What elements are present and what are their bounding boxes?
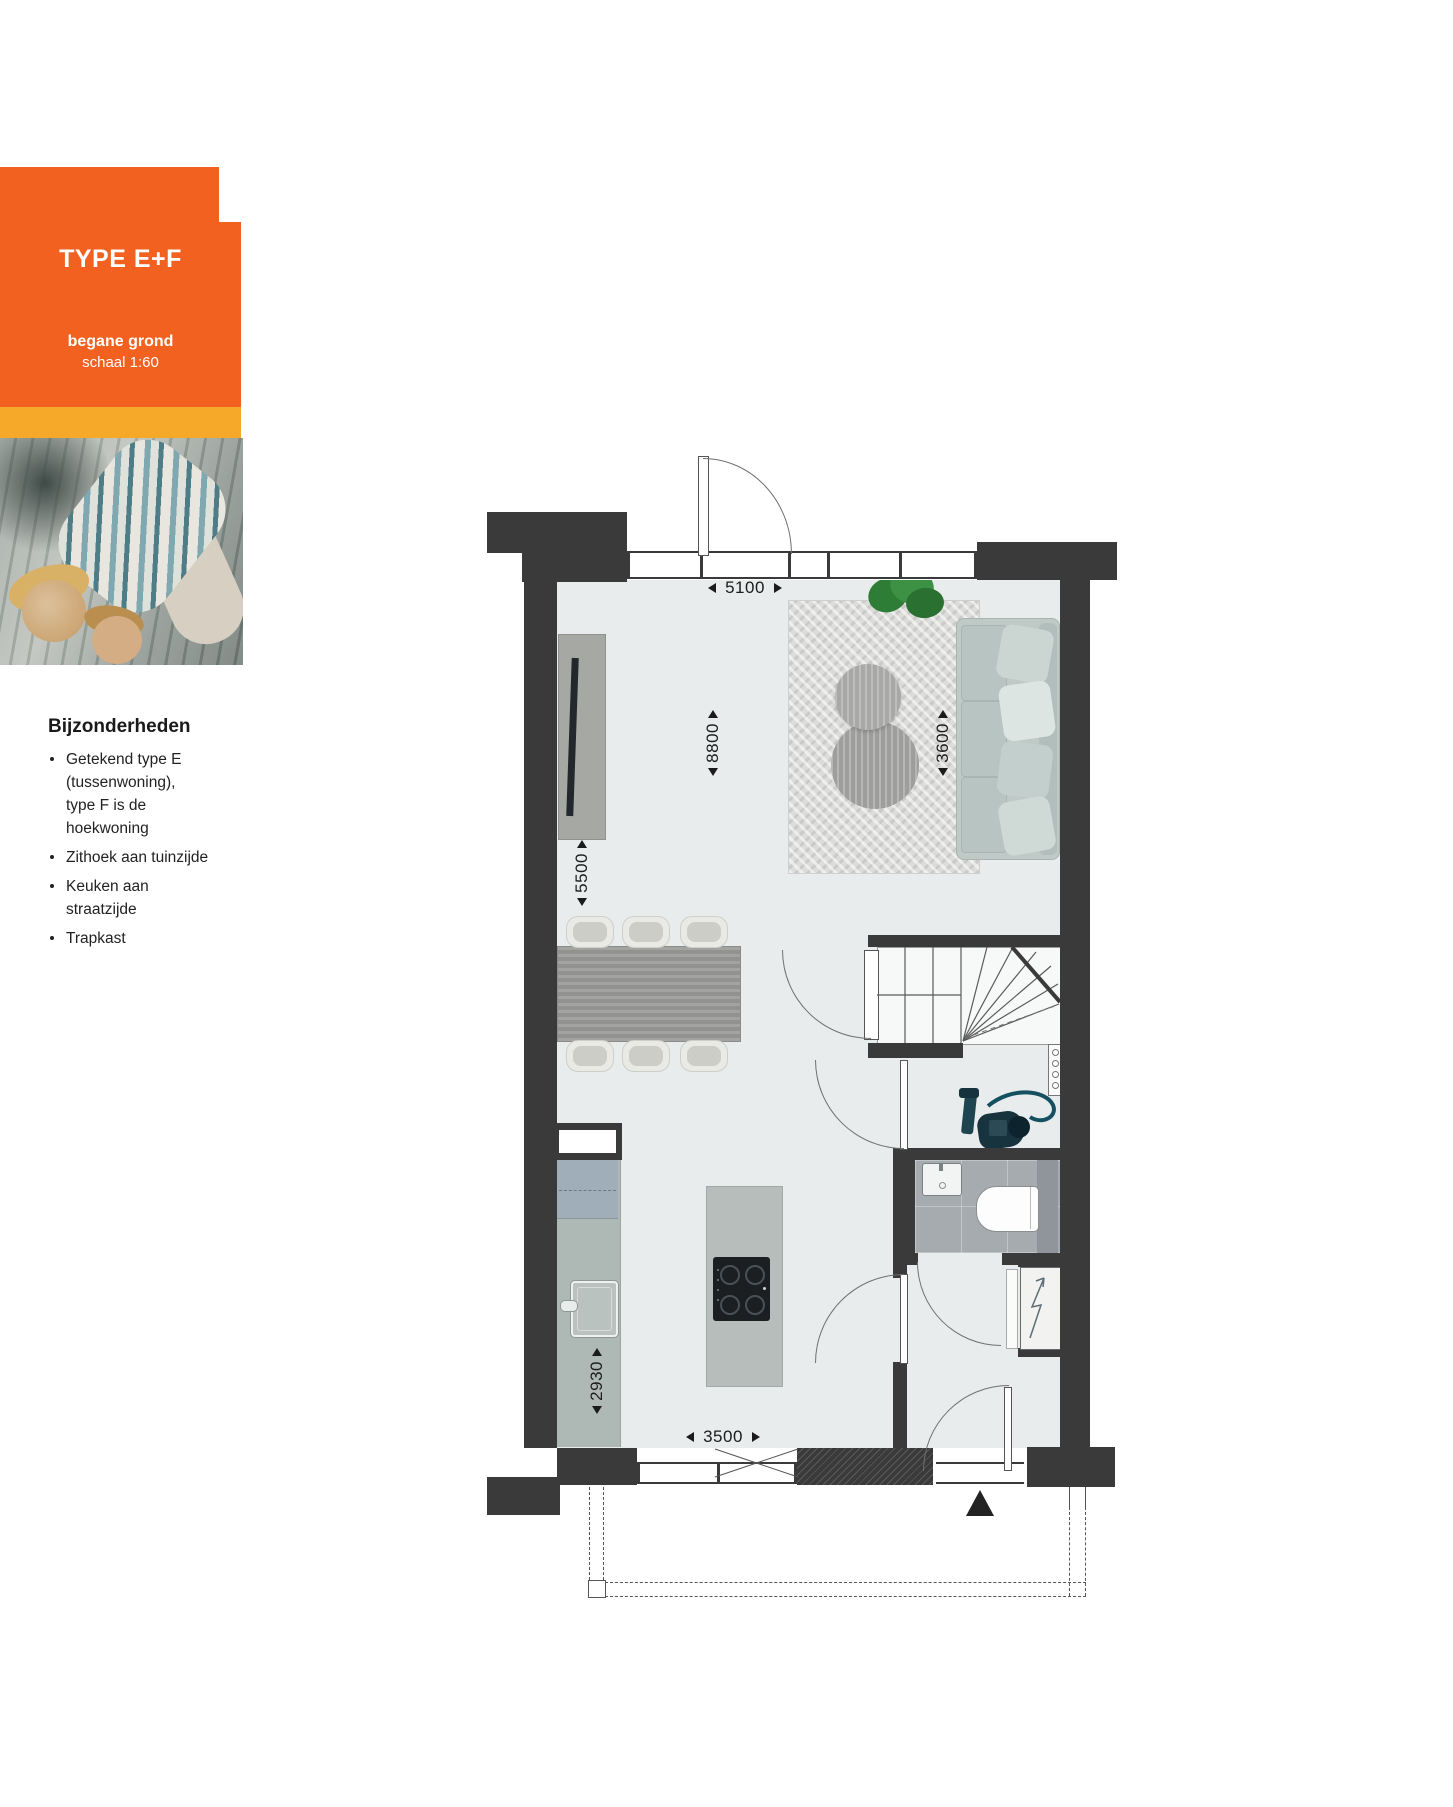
plot-boundary (1085, 1507, 1086, 1596)
wall-hall (893, 1148, 907, 1278)
window-mullion (794, 1462, 797, 1484)
wall-bottom-hatched (797, 1448, 933, 1485)
chair (622, 1040, 670, 1072)
arrow-up-icon (938, 710, 948, 718)
wall-niche-opening (559, 1130, 616, 1153)
wall-bottom-right-corner (1027, 1447, 1115, 1487)
wall-stair-bottom (868, 1043, 963, 1058)
dimension-bottom-width: 3500 (673, 1427, 773, 1447)
plot-boundary (603, 1487, 604, 1580)
sofa-pillow (995, 623, 1056, 685)
arrow-right-icon (774, 583, 782, 593)
entrance-marker-icon (966, 1490, 994, 1516)
dimension-top-width: 5100 (695, 578, 795, 598)
dimension-living-depth: 8800 (698, 710, 728, 776)
garden-door-swing (703, 458, 792, 554)
arrow-down-icon (577, 898, 587, 906)
cooktop (713, 1257, 770, 1321)
sofa-pillow (997, 795, 1058, 857)
arrow-up-icon (577, 840, 587, 848)
pouf (831, 721, 919, 809)
dimension-sitting-width: 3600 (928, 710, 958, 776)
meter-cupboard-door (1006, 1269, 1018, 1349)
wall-top-left-corner (522, 553, 627, 582)
plot-boundary (605, 1596, 1086, 1597)
window-mullion (827, 551, 830, 579)
toilet (976, 1186, 1039, 1232)
dimension-kitchen-depth: 2930 (582, 1348, 612, 1414)
plot-corner-marker (588, 1580, 606, 1598)
sink (571, 1281, 618, 1337)
plot-boundary (1069, 1507, 1070, 1596)
wall-extension-mark (1085, 1487, 1086, 1507)
wall-toilet-top (893, 1148, 1060, 1160)
window-glazing-top (627, 551, 977, 579)
arrow-down-icon (592, 1406, 602, 1414)
arrow-down-icon (938, 768, 948, 776)
wall-extension-mark (1069, 1487, 1070, 1507)
window-mullion (974, 551, 977, 579)
washbasin (922, 1163, 962, 1196)
wall-top-left-corner (487, 512, 627, 553)
plot-boundary (605, 1582, 1086, 1583)
chair (566, 916, 614, 948)
floorplan: 5100 8800 3600 5500 2930 3500 (0, 0, 1453, 1807)
wall-toilet-bottom (1002, 1253, 1060, 1265)
window-mullion (788, 551, 791, 579)
meter-cupboard (1020, 1267, 1062, 1350)
wall-bottom-left (557, 1448, 637, 1485)
window-mullion (637, 1462, 640, 1484)
chair (680, 1040, 728, 1072)
dimension-upper-left-depth: 5500 (567, 840, 597, 906)
brochure-page: { "card": { "title": "TYPE E+F", "floor_… (0, 0, 1453, 1807)
wall-bottom-left-corner (487, 1477, 560, 1515)
window-mullion (899, 551, 902, 579)
arrow-down-icon (708, 768, 718, 776)
sofa (956, 618, 1060, 860)
arrow-left-icon (708, 583, 716, 593)
wall-left (524, 582, 557, 1448)
sofa-pillow (996, 740, 1054, 800)
arrow-right-icon (752, 1432, 760, 1442)
plot-boundary (589, 1487, 590, 1580)
toilet-duct (1037, 1160, 1058, 1253)
window-mullion (627, 551, 630, 579)
wall-right (1060, 580, 1090, 1447)
chair (622, 916, 670, 948)
kitchen-appliance (557, 1160, 618, 1219)
wall-top-right (977, 542, 1117, 580)
wall-toilet-left (907, 1160, 915, 1253)
dining-table (557, 946, 741, 1042)
wall-hall-lower (893, 1362, 907, 1448)
faucet (560, 1300, 578, 1312)
arrow-left-icon (686, 1432, 694, 1442)
chair (566, 1040, 614, 1072)
staircase (877, 947, 1062, 1045)
window-mullion (717, 1462, 720, 1484)
pouf (835, 664, 901, 730)
chair (680, 916, 728, 948)
arrow-up-icon (592, 1348, 602, 1356)
arrow-up-icon (708, 710, 718, 718)
tv-cabinet (558, 634, 606, 840)
sofa-pillow (997, 680, 1056, 743)
vacuum-cleaner (959, 1088, 1059, 1150)
wall-stair-top (868, 935, 1090, 947)
